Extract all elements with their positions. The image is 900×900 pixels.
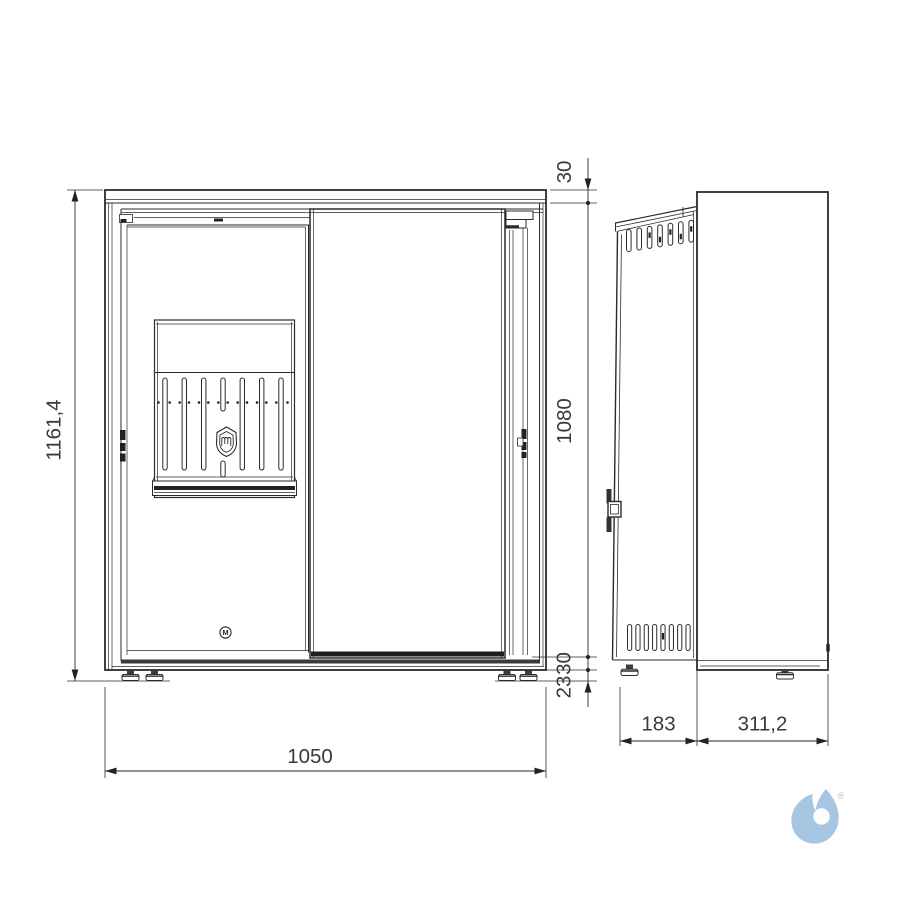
front-view: M [67, 190, 597, 681]
front-grille [153, 320, 297, 498]
front-base-band [112, 660, 544, 667]
door-logo-letter: M [222, 628, 228, 637]
side-view [607, 192, 830, 679]
dim-label-feet: 23 [553, 676, 576, 699]
side-front-panel [613, 207, 698, 661]
dim-label-front-depth: 183 [641, 713, 675, 736]
side-top-vents [627, 220, 694, 251]
dim-depth-row: 183 311,2 [620, 671, 828, 746]
left-hinge-detail [120, 430, 126, 440]
dim-label-total-height: 1161,4 [43, 399, 66, 460]
drawing-page: M [0, 0, 900, 900]
side-feet [621, 665, 794, 680]
side-body [694, 192, 830, 670]
right-latch-detail [522, 429, 527, 439]
foot [146, 671, 163, 681]
front-left-frame [109, 203, 128, 670]
foot [122, 671, 139, 681]
rear-port-detail [826, 644, 829, 652]
dim-label-base: 30 [553, 652, 576, 675]
dim-label-total-width: 1050 [287, 745, 333, 768]
dim-label-top-cap: 30 [553, 161, 576, 184]
side-bottom-vents [628, 625, 691, 651]
technical-drawing-canvas: M [0, 0, 900, 900]
dim-right-column: 30 1080 30 23 [528, 158, 597, 707]
front-sliding-panel [310, 209, 505, 658]
panel-bottom-strip [311, 652, 504, 657]
foot [520, 671, 537, 681]
watermark-drop-icon: ® [791, 789, 844, 844]
door-logo: M [220, 627, 231, 638]
dim-label-body-depth: 311,2 [738, 713, 788, 736]
watermark-registered-mark: ® [838, 791, 845, 801]
front-feet [67, 671, 597, 682]
foot [621, 665, 638, 676]
dim-width-1050: 1050 [105, 687, 546, 778]
foot [499, 671, 516, 681]
front-right-frame [510, 203, 544, 666]
dim-height-1161: 1161,4 [43, 190, 104, 681]
dim-label-body-height: 1080 [553, 398, 576, 444]
rail-bracket-detail [506, 211, 533, 220]
